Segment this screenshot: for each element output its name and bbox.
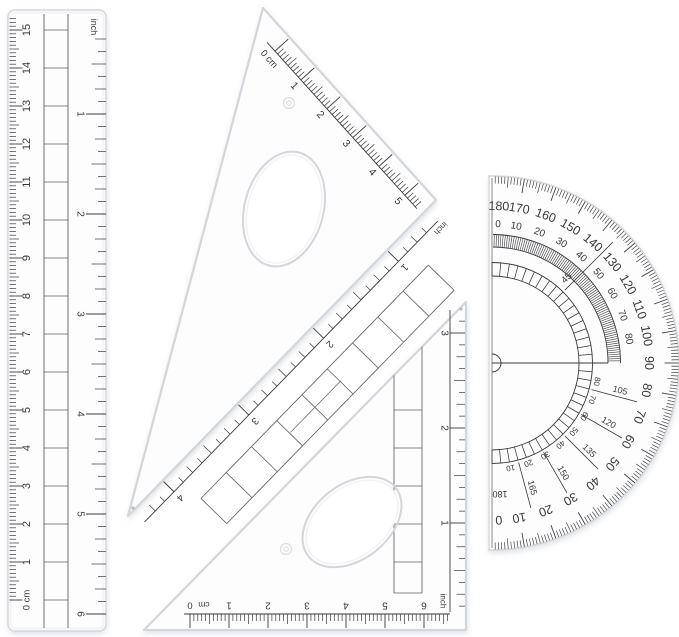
ruler: 0 cm123456789101112131415inch123456 bbox=[8, 10, 106, 631]
strip-divider bbox=[378, 317, 404, 342]
inch-tick bbox=[366, 286, 371, 291]
fifteen-label: 180 bbox=[492, 489, 507, 499]
inch-tick bbox=[216, 439, 221, 444]
ruler-cm-label: 4 bbox=[21, 445, 33, 451]
strip-divider bbox=[403, 291, 429, 316]
inch-tick bbox=[197, 458, 202, 463]
ruler-cm-label: 3 bbox=[21, 483, 33, 489]
corner-pip bbox=[459, 307, 462, 310]
ruler-inch-label: 4 bbox=[75, 411, 86, 417]
corner-pip bbox=[131, 506, 134, 509]
inch-tick bbox=[291, 362, 296, 367]
strip-subline bbox=[290, 381, 340, 433]
cm-label: 3 bbox=[304, 600, 310, 611]
strip-divider bbox=[226, 473, 252, 498]
ruler-inch-label: 5 bbox=[75, 511, 86, 517]
inch-tick bbox=[374, 275, 380, 281]
ruler-cm-label: 7 bbox=[21, 331, 33, 337]
ruler-cm-label: 0 cm bbox=[22, 590, 33, 611]
inch-tick bbox=[160, 497, 165, 502]
inch-tick bbox=[403, 247, 408, 252]
outer-scale-label: 90 bbox=[642, 356, 656, 370]
inch-tick bbox=[388, 251, 398, 261]
outer-scale-label: 80 bbox=[639, 382, 655, 398]
cm-zero-unit: cm bbox=[198, 600, 209, 610]
inch-label: 1 bbox=[439, 520, 450, 526]
ruler-cm-label: 6 bbox=[21, 369, 33, 375]
inch-tick bbox=[384, 266, 389, 271]
cm-zero-label: 0 bbox=[187, 600, 192, 611]
inch-tick bbox=[411, 236, 417, 242]
cm-label: 5 bbox=[382, 600, 388, 611]
inch-unit-label: inch bbox=[432, 220, 449, 237]
cm-label: 1 bbox=[226, 600, 232, 611]
inch-label: 3 bbox=[439, 330, 450, 336]
strip-divider bbox=[353, 343, 379, 368]
outer-scale-label: 180 bbox=[488, 199, 509, 214]
inch-tick bbox=[204, 446, 212, 454]
ruler-inch-label: 1 bbox=[75, 111, 86, 117]
ruler-inch-unit: inch bbox=[89, 19, 99, 36]
inch-tick bbox=[179, 478, 184, 483]
outer-scale-label: 10 bbox=[511, 510, 527, 526]
ruler-cm-label: 5 bbox=[21, 407, 33, 413]
ruler-cm-label: 12 bbox=[21, 138, 33, 150]
inch-tick bbox=[328, 324, 333, 329]
inch-tick bbox=[187, 467, 193, 473]
inner-scale-label: 0 bbox=[495, 219, 501, 230]
inch-tick bbox=[261, 390, 267, 396]
inch-tick bbox=[272, 382, 277, 387]
ruler-inch-label: 3 bbox=[75, 311, 86, 317]
inch-tick bbox=[310, 343, 315, 348]
strip-divider bbox=[251, 447, 277, 472]
inch-tick bbox=[353, 292, 361, 300]
geometry-set-product-photo: 0 cm123456789101112131415inch123456 0 cm… bbox=[0, 0, 679, 637]
inch-label: 1 bbox=[398, 261, 410, 273]
ruler-inch-label: 6 bbox=[75, 611, 86, 617]
ruler-cm-label: 1 bbox=[21, 559, 33, 565]
inch-tick bbox=[224, 428, 230, 434]
ruler-cm-label: 15 bbox=[21, 24, 33, 36]
inch-label: 4 bbox=[174, 491, 186, 503]
inch-tick bbox=[299, 351, 305, 357]
inch-tick bbox=[149, 505, 155, 511]
ruler-cm-label: 10 bbox=[21, 214, 33, 226]
inch-tick bbox=[238, 405, 248, 415]
ruler-cm-label: 14 bbox=[21, 62, 33, 74]
inch-tick bbox=[254, 401, 259, 406]
ruler-cm-label: 2 bbox=[21, 521, 33, 527]
inch-tick bbox=[235, 420, 240, 425]
inch-label: 2 bbox=[323, 338, 335, 350]
inch-tick bbox=[313, 328, 323, 338]
ruler-cm-label: 11 bbox=[21, 176, 33, 187]
inch-tick bbox=[164, 482, 174, 492]
strip-divider bbox=[428, 265, 454, 290]
inch-label: 2 bbox=[439, 425, 450, 431]
inch-tick bbox=[347, 305, 352, 310]
protractor: 1801701601501401301201101009080706050403… bbox=[488, 176, 679, 550]
ruler-cm-label: 13 bbox=[21, 100, 33, 112]
strip-divider bbox=[201, 498, 227, 523]
ruler-inch-label: 2 bbox=[75, 211, 86, 217]
cm-label: 2 bbox=[265, 600, 271, 611]
inch-tick bbox=[422, 228, 427, 233]
outer-scale-label: 0 bbox=[495, 513, 503, 527]
ruler-cm-label: 9 bbox=[21, 255, 33, 261]
ruler-cm-label: 8 bbox=[21, 293, 33, 299]
inch-unit-label: inch bbox=[439, 594, 448, 609]
inch-tick bbox=[278, 369, 286, 377]
inch-label: 3 bbox=[248, 415, 260, 427]
geometry-set-scene: 0 cm123456789101112131415inch123456 0 cm… bbox=[0, 0, 679, 637]
cm-label: 4 bbox=[343, 600, 349, 611]
cm-label: 6 bbox=[421, 600, 427, 611]
inch-tick bbox=[336, 313, 342, 319]
